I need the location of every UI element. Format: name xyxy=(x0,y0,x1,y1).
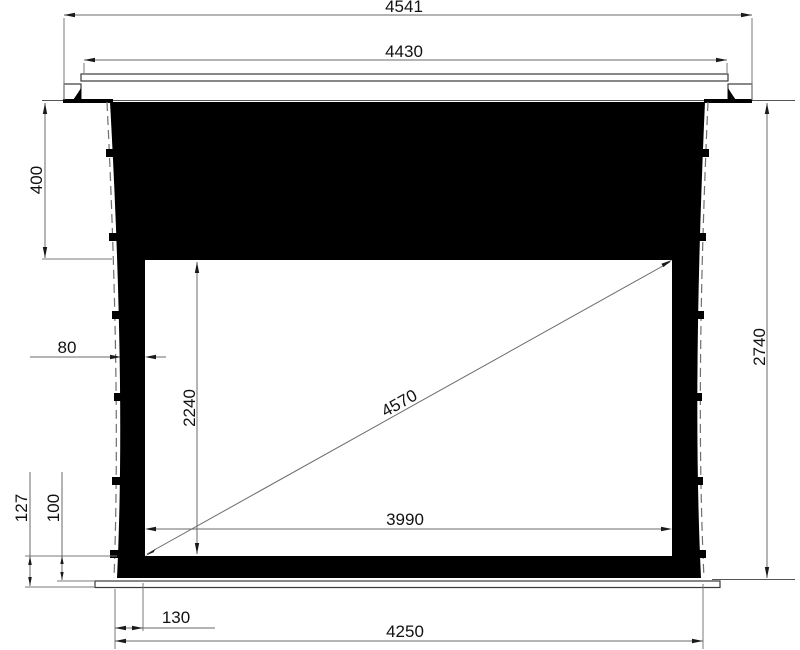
bottom-bar xyxy=(95,581,720,588)
dim-total-drop: 2740 xyxy=(750,103,769,578)
dim-flange-width: 4430 xyxy=(84,42,727,73)
dim-label-2240: 2240 xyxy=(180,389,199,427)
tension-tab xyxy=(112,477,121,485)
tension-tab xyxy=(114,393,123,401)
dim-label-2740: 2740 xyxy=(750,328,769,366)
tension-tab xyxy=(112,311,121,319)
tension-tab xyxy=(693,393,702,401)
dim-label-400: 400 xyxy=(27,166,46,194)
dim-label-4541: 4541 xyxy=(385,0,423,16)
dim-label-100: 100 xyxy=(44,494,63,522)
dim-label-127: 127 xyxy=(12,494,31,522)
tension-tab xyxy=(695,311,704,319)
dim-bottom-bar-width: 4250 xyxy=(115,584,703,649)
tension-tab xyxy=(694,477,703,485)
dim-label-80: 80 xyxy=(58,338,77,357)
dim-label-3990: 3990 xyxy=(386,510,424,529)
dim-bottom-corner-offset: 130 xyxy=(115,583,215,649)
dim-label-4250: 4250 xyxy=(386,622,424,641)
housing-flange xyxy=(81,74,728,81)
tension-tab xyxy=(109,233,118,241)
drawing-canvas: 4541 4430 400 80 2240 4570 xyxy=(0,0,800,650)
dim-bottom-border-height: 100 xyxy=(44,472,95,581)
tension-tab xyxy=(106,149,115,157)
dim-label-4430: 4430 xyxy=(385,42,423,61)
dim-top-black-drop: 400 xyxy=(27,103,112,259)
tension-tab xyxy=(700,149,709,157)
tension-tab xyxy=(697,233,706,241)
dim-label-130: 130 xyxy=(162,608,190,627)
tension-tab xyxy=(110,550,119,558)
dim-bottom-drop-total: 127 xyxy=(12,472,117,587)
tension-tab xyxy=(697,550,706,558)
screen-dimension-drawing: 4541 4430 400 80 2240 4570 xyxy=(0,0,800,650)
